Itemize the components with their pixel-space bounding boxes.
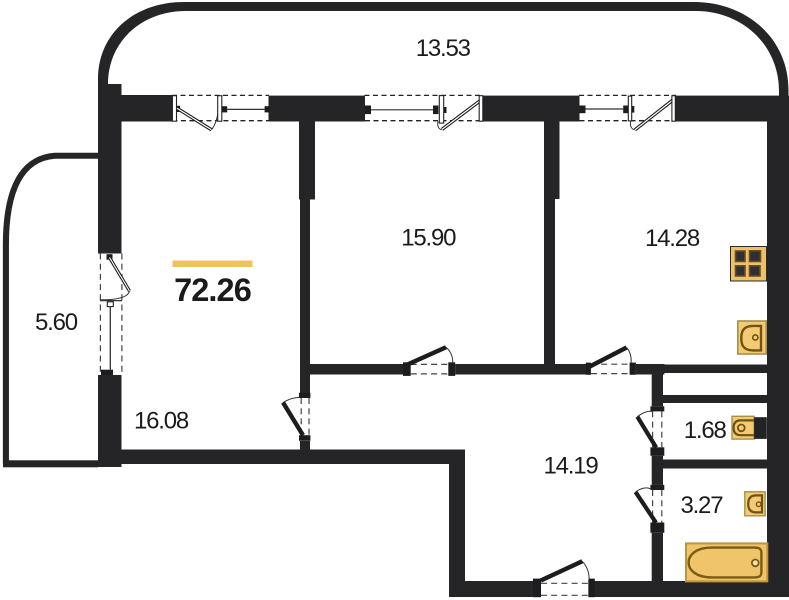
svg-text:15.90: 15.90 [401,225,456,252]
svg-text:1.68: 1.68 [684,417,727,444]
svg-text:5.60: 5.60 [35,309,78,336]
svg-text:14.28: 14.28 [645,225,700,252]
svg-text:14.19: 14.19 [543,453,598,480]
svg-text:16.08: 16.08 [134,408,189,435]
svg-text:13.53: 13.53 [416,35,471,62]
svg-text:3.27: 3.27 [680,492,723,519]
svg-text:72.26: 72.26 [174,272,251,308]
